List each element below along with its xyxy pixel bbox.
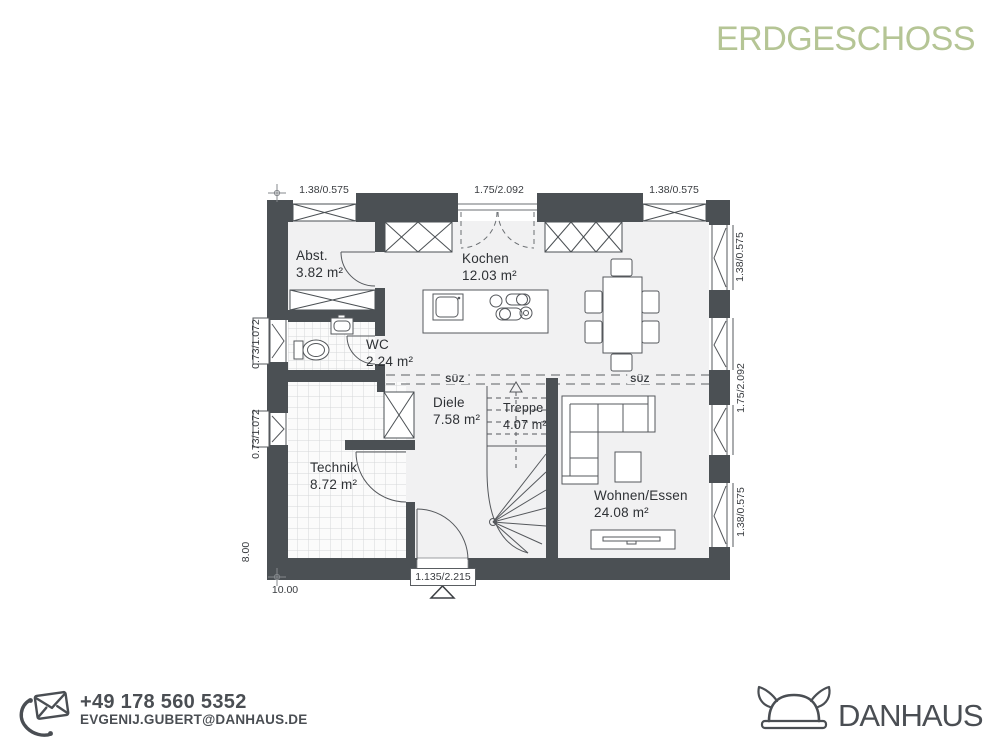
room-label-treppe: Treppe4.07 m² <box>503 400 547 434</box>
entrance-marker-icon <box>431 586 454 598</box>
dim-width: 10.00 <box>272 584 298 596</box>
toilet <box>294 340 329 360</box>
page: ERDGESCHOSS <box>0 0 1000 750</box>
room-label-diele: Diele7.58 m² <box>433 394 480 428</box>
window-right-4 <box>712 483 733 547</box>
dim-right-3: 1.38/0.575 <box>735 487 747 537</box>
shaft <box>384 392 414 438</box>
danhaus-helmet-icon <box>758 687 829 728</box>
section-label-right: SÜZ <box>627 374 653 384</box>
floor-plan <box>0 0 1000 750</box>
dining-table <box>603 277 642 353</box>
room-label-technik: Technik8.72 m² <box>310 459 357 493</box>
dim-top-1: 1.38/0.575 <box>299 184 349 196</box>
room-label-kochen: Kochen12.03 m² <box>462 250 517 284</box>
kitchen-island <box>423 290 548 333</box>
window-top-right <box>643 204 706 221</box>
window-top-left <box>293 204 356 221</box>
room-label-wohnen: Wohnen/Essen24.08 m² <box>594 487 688 521</box>
phone-mail-icon <box>21 692 68 736</box>
window-right-1 <box>712 225 733 290</box>
section-label-left: SÜZ <box>442 374 468 384</box>
tv-lowboard <box>591 530 675 549</box>
contact-phone: +49 178 560 5352 <box>80 691 247 714</box>
dim-entrance: 1.135/2.215 <box>410 568 476 586</box>
brand-name: DANHAUS <box>838 698 983 734</box>
page-title: ERDGESCHOSS <box>716 20 975 59</box>
wc-sink <box>331 315 353 334</box>
contact-email: EVGENIJ.GUBERT@DANHAUS.DE <box>80 712 307 727</box>
dim-left-1: 0.73/1.072 <box>250 319 262 369</box>
armchair <box>615 452 641 482</box>
window-right-2 <box>712 318 733 370</box>
window-right-3 <box>712 405 733 455</box>
dim-height: 8.00 <box>240 542 252 562</box>
abst-sideboard <box>290 290 375 310</box>
room-label-wc: WC2.24 m² <box>366 336 413 370</box>
dim-left-2: 0.73/1.072 <box>250 409 262 459</box>
room-label-abst: Abst.3.82 m² <box>296 247 343 281</box>
dim-right-2: 1.75/2.092 <box>735 363 747 413</box>
dim-right-1: 1.38/0.575 <box>734 232 746 282</box>
dim-top-3: 1.38/0.575 <box>649 184 699 196</box>
dim-top-2: 1.75/2.092 <box>474 184 524 196</box>
